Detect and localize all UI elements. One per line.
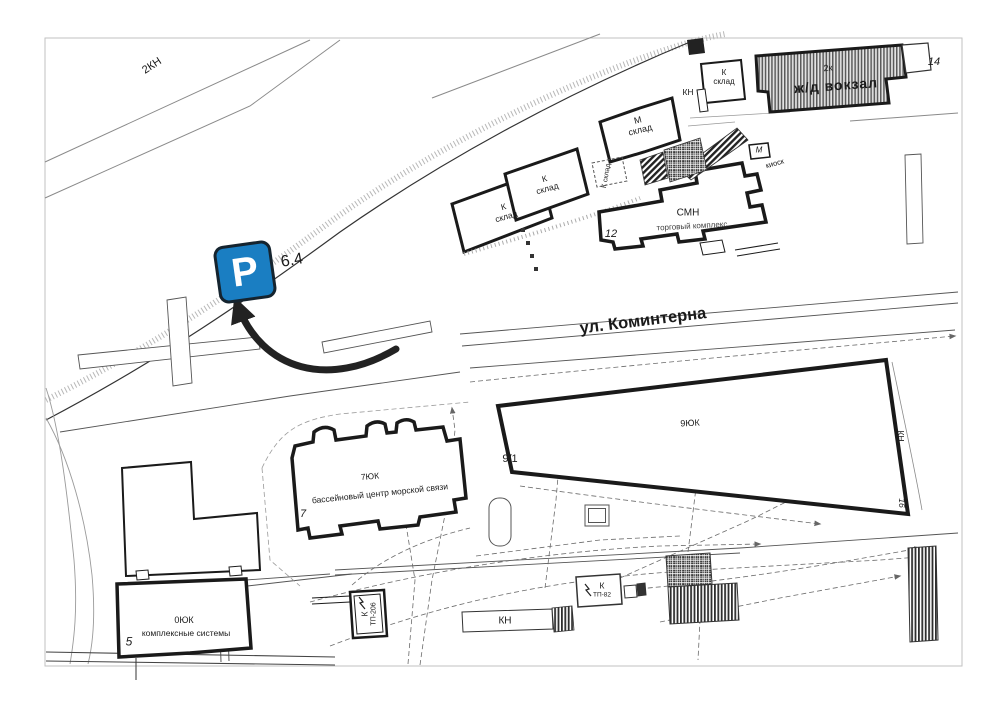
pool-center-number: 7: [300, 508, 306, 520]
trade-center-number: 12: [605, 228, 617, 240]
long-building-side-label: КН: [895, 430, 905, 441]
parking-sign-letter: P: [229, 248, 262, 296]
tp206-label: К ТП-206: [360, 602, 377, 625]
kiosk-code: М: [756, 147, 763, 156]
complex-systems-number: 5: [126, 635, 133, 648]
pool-center-code: 7ЮК: [360, 471, 379, 482]
complex-systems-name: комплексные системы: [142, 629, 230, 639]
kn-strip-label: КН: [498, 615, 511, 626]
yard-details: [489, 498, 609, 546]
trade-center-code: СМН: [677, 207, 700, 218]
station-shed-side-label: КН: [682, 88, 693, 98]
complex-systems-code: 0ЮК: [174, 615, 193, 625]
station-shed-label: К склад: [713, 69, 734, 87]
kn-strip-building: [462, 606, 574, 632]
long-building-code: 9ЮК: [680, 417, 700, 428]
map-linework: [0, 0, 1000, 706]
long-building-number: 9/1: [502, 453, 517, 465]
long-building-side-number: 16: [896, 498, 906, 507]
terrain-lines: [46, 388, 94, 664]
parking-sign-marker[interactable]: P: [212, 239, 278, 305]
station-code: 2к: [823, 63, 833, 74]
distance-label: 6.4: [279, 250, 304, 271]
site-plan-map: 2КН P 6.4 ул. Коминтерна К склад К склад…: [0, 0, 1000, 706]
left-parcel-building: [122, 462, 260, 580]
tp82-label: К ТП-82: [593, 582, 611, 599]
station-number: 14: [928, 56, 940, 68]
long-building: [498, 360, 922, 514]
lightning-icon: [359, 584, 591, 609]
